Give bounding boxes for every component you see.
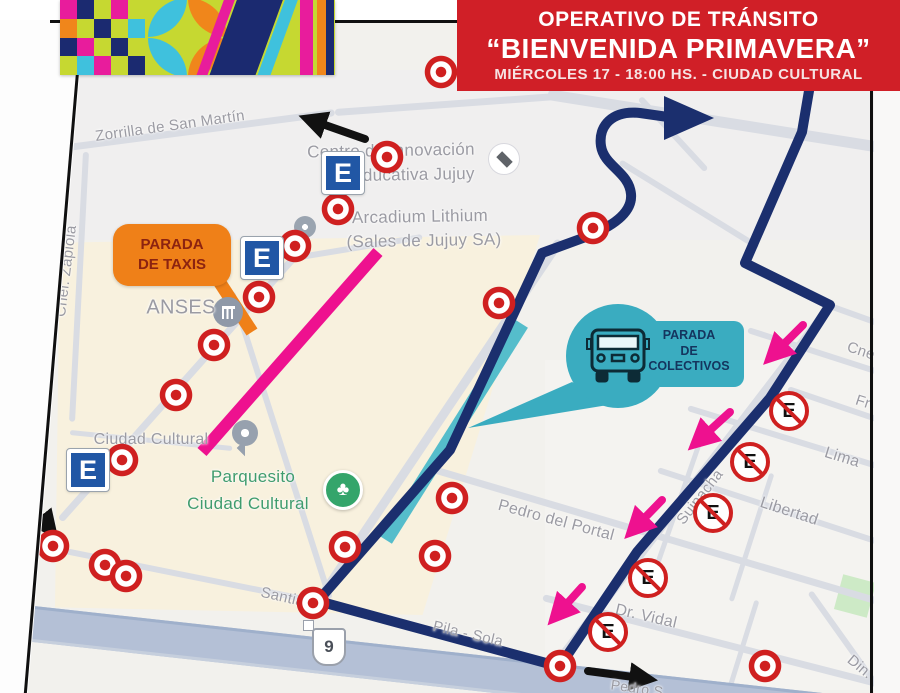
event-banner: OPERATIVO DE TRÁNSITO “BIENVENIDA PRIMAV… (457, 0, 900, 91)
banner-title: OPERATIVO DE TRÁNSITO (457, 8, 900, 32)
logo-petal (148, 0, 187, 37)
building-icon (222, 306, 235, 319)
street-label: Arcadium Lithium (352, 206, 488, 228)
no-stopping-marker (370, 140, 404, 174)
no-parking-sign: E (730, 442, 770, 482)
flow-arrow-2 (696, 412, 730, 443)
no-stopping-marker (105, 443, 139, 477)
logo-petal (148, 38, 187, 75)
logo-tile (111, 0, 128, 19)
street-label: Educativa Jujuy (351, 164, 475, 186)
taxi-stop-callout: PARADADE TAXIS (113, 224, 231, 286)
logo-tile (77, 19, 94, 38)
logo-tile (77, 0, 94, 19)
no-parking-sign: E (769, 391, 809, 431)
street-label: ANSES (146, 297, 215, 320)
street-map: ♣ 9 Zorrilla de San MartínCnel. ZapiolaC… (0, 0, 900, 693)
no-stopping-marker (159, 378, 193, 412)
parking-sign: E (241, 237, 283, 279)
no-stopping-marker (328, 530, 362, 564)
no-stopping-marker (109, 559, 143, 593)
parking-sign: E (322, 152, 364, 194)
logo-tile (128, 0, 145, 19)
logo-tile (77, 38, 94, 57)
no-parking-sign: E (588, 612, 628, 652)
bus-stop-callout-label: PARADA DE COLECTIVOS (638, 328, 740, 375)
graduation-cap-icon (496, 151, 512, 167)
route9-shield: 9 (312, 628, 346, 666)
poi-pin (232, 420, 258, 446)
no-stopping-marker (424, 55, 458, 89)
logo-tile (94, 19, 111, 38)
no-parking-sign: E (693, 493, 733, 533)
logo-stripe (326, 0, 334, 75)
no-stopping-marker (278, 229, 312, 263)
page-margin-right (874, 84, 900, 693)
no-stopping-marker (296, 586, 330, 620)
logo-tile (60, 19, 77, 38)
flow-arrow-4 (555, 587, 582, 617)
logo-tile (94, 0, 111, 19)
logo-tile (94, 38, 111, 57)
no-stopping-marker (543, 649, 577, 683)
no-stopping-marker (418, 539, 452, 573)
logo-tile (77, 56, 94, 75)
logo-tile (111, 38, 128, 57)
logo-tile (94, 56, 111, 75)
logo-stripe (317, 0, 326, 75)
logo-tile (60, 56, 77, 75)
no-stopping-marker (197, 328, 231, 362)
no-stopping-marker (576, 211, 610, 245)
street-label: Ciudad Cultural (187, 494, 309, 514)
logo-stripe (300, 0, 313, 75)
logo-tile (128, 19, 145, 38)
no-parking-sign: E (628, 558, 668, 598)
no-stopping-marker (242, 280, 276, 314)
logo-tile (60, 0, 77, 19)
logo-tile (111, 56, 128, 75)
map-frame-right (870, 84, 873, 693)
logo-tile (128, 38, 145, 57)
poi-tree: ♣ (323, 470, 363, 510)
logo-tile (111, 19, 128, 38)
logo-mosaic (60, 0, 145, 75)
flyer: ♣ 9 Zorrilla de San MartínCnel. ZapiolaC… (0, 0, 900, 693)
route-arrowhead (664, 96, 714, 140)
street-label: (Sales de Jujuy SA) (346, 230, 501, 253)
poi-school (488, 143, 520, 175)
no-stopping-marker (435, 481, 469, 515)
logo-tile (60, 38, 77, 57)
logo-tile (128, 56, 145, 75)
banner-details: MIÉRCOLES 17 - 18:00 HS. - CIUDAD CULTUR… (457, 66, 900, 83)
exit-arrow-top (308, 119, 365, 139)
banner-subtitle: “BIENVENIDA PRIMAVERA” (457, 33, 900, 65)
street-label: Parquesito (211, 467, 295, 487)
no-stopping-marker (321, 192, 355, 226)
poi-building (213, 297, 243, 327)
parking-sign: E (67, 449, 109, 491)
no-stopping-marker (748, 649, 782, 683)
event-logo (60, 0, 335, 75)
no-stopping-marker (482, 286, 516, 320)
